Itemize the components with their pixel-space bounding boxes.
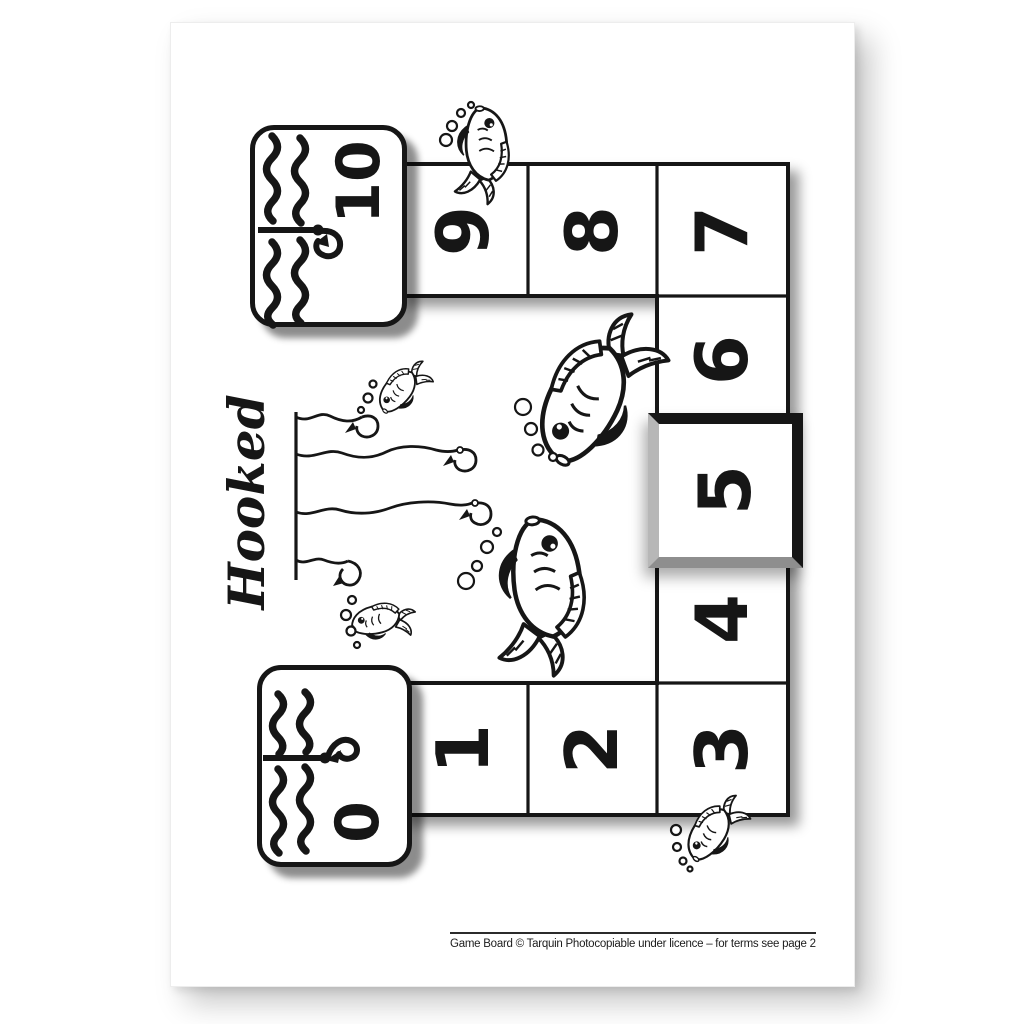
decorative-art — [0, 0, 1024, 1024]
game-title: Hooked — [201, 402, 291, 602]
footer-licence-text: Game Board © Tarquin Photocopiable under… — [450, 932, 816, 950]
fish-icon — [370, 352, 439, 424]
fish-icon — [677, 785, 756, 873]
fishing-line-icon — [296, 414, 491, 585]
fish-icon — [487, 513, 590, 680]
fish-icon — [347, 597, 419, 647]
footer: Game Board © Tarquin Photocopiable under… — [450, 932, 816, 952]
fish-icon — [452, 105, 511, 205]
bubbles-icon — [341, 102, 693, 872]
line-bead — [457, 447, 463, 453]
game-board-page: 9 8 7 6 5 4 3 2 1 10 — [0, 0, 1024, 1024]
line-bead — [472, 500, 478, 506]
fish-icon — [520, 296, 680, 485]
